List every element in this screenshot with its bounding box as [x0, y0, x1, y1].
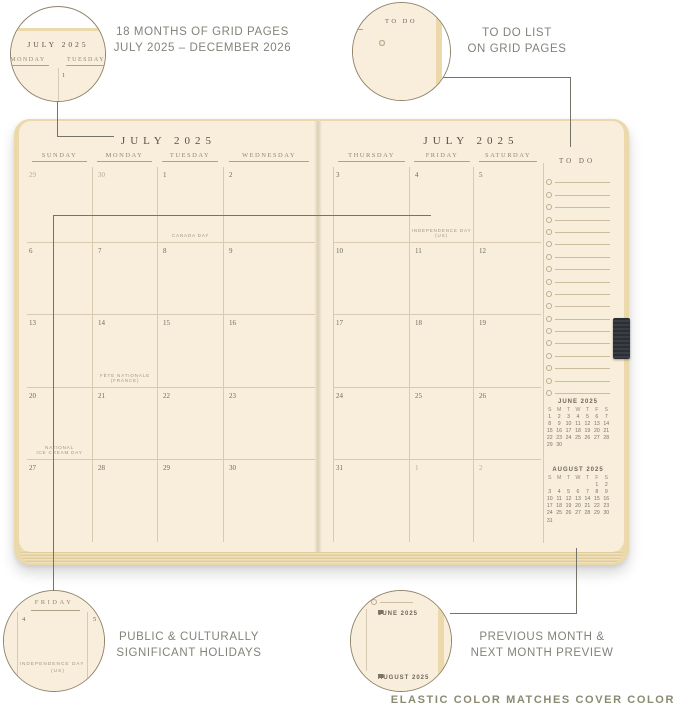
- mini-calendar-title: AUGUST 2025: [545, 467, 611, 473]
- mini-date: 30: [554, 443, 563, 449]
- todo-line: [555, 294, 610, 295]
- mini-date: 29: [545, 443, 554, 449]
- todo-line: [555, 381, 610, 382]
- mini-date: 10: [545, 497, 554, 503]
- calendar-cell: 2: [473, 459, 541, 542]
- mini-day-letter: M: [554, 476, 563, 482]
- todo-item: [546, 295, 610, 307]
- callout-line: TO DO LIST: [482, 27, 552, 39]
- checkbox-circle-icon: [546, 316, 552, 322]
- zoom-circle-holiday: FRIDAY 4 5 INDEPENDENCE DAY (US): [3, 590, 105, 692]
- date-number: 13: [29, 319, 36, 327]
- callout-line: NEXT MONTH PREVIEW: [471, 647, 614, 659]
- mini-date: 1: [592, 483, 601, 489]
- mini-date: 21: [602, 429, 611, 435]
- callout-month-preview: PREVIOUS MONTH & NEXT MONTH PREVIEW: [462, 629, 622, 661]
- mini-date: 12: [564, 497, 573, 503]
- zoomed-day-underline: [31, 610, 80, 611]
- mini-date: 28: [583, 511, 592, 517]
- todo-item: [546, 245, 610, 257]
- mini-date: 19: [583, 429, 592, 435]
- mini-day-letter: T: [583, 476, 592, 482]
- zoom-circle-todo: TO DO: [352, 2, 451, 101]
- mini-date: 3: [545, 490, 554, 496]
- date-number: 27: [29, 464, 36, 472]
- mini-date: 2: [602, 483, 611, 489]
- zoomed-page-edge: [438, 591, 444, 691]
- mini-date: [564, 443, 573, 449]
- zoomed-date-number: 4: [22, 616, 25, 623]
- mini-date: 17: [545, 504, 554, 510]
- mini-date: 7: [583, 490, 592, 496]
- mini-date: 2: [554, 415, 563, 421]
- zoomed-date-number: 5: [93, 616, 96, 623]
- mini-date: 6: [573, 490, 582, 496]
- checkbox-circle-icon: [546, 279, 552, 285]
- todo-item: [546, 357, 610, 369]
- zoomed-month-title: JULY 2025: [11, 40, 105, 49]
- day-header-label: WEDNESDAY: [229, 152, 308, 162]
- leader-line-preview: [450, 548, 577, 614]
- mini-calendar-grid: SMTWTFS123456789101112131415161718192021…: [545, 476, 611, 525]
- mini-date: 15: [592, 497, 601, 503]
- mini-day-letter: T: [564, 408, 573, 414]
- zoomed-day-tuesday: TUESDAY: [66, 57, 106, 66]
- mini-date: [554, 483, 563, 489]
- mini-day-letter: T: [583, 408, 592, 414]
- checkbox-circle-icon: [371, 599, 377, 605]
- zoom-circle-grid-pages: JULY 2025 MONDAY TUESDAY 1: [10, 6, 106, 102]
- callout-line: PREVIOUS MONTH &: [479, 631, 604, 643]
- mini-date: 23: [554, 436, 563, 442]
- todo-line: [555, 319, 610, 320]
- todo-item: [546, 171, 610, 183]
- todo-item: [546, 369, 610, 381]
- mini-date: 16: [602, 497, 611, 503]
- checkbox-circle-icon: [546, 390, 552, 396]
- mini-date: [545, 483, 554, 489]
- mini-date: 9: [554, 422, 563, 428]
- mini-date: 4: [554, 490, 563, 496]
- day-header-label: TUESDAY: [162, 152, 219, 162]
- day-header-label: SATURDAY: [479, 152, 537, 162]
- mini-date: [583, 483, 592, 489]
- checkbox-circle-icon: [546, 217, 552, 223]
- day-header-row-right: THURSDAYFRIDAYSATURDAY: [333, 152, 542, 162]
- todo-item: [546, 344, 610, 356]
- todo-item: [546, 208, 610, 220]
- mini-date: 22: [592, 504, 601, 510]
- mini-date: 14: [602, 422, 611, 428]
- callout-line: JULY 2025 – DECEMBER 2026: [114, 42, 292, 54]
- calendar-cell: 19: [473, 314, 541, 387]
- mini-date: 22: [545, 436, 554, 442]
- mini-calendar-title: JUNE 2025: [545, 399, 611, 405]
- todo-line: [555, 343, 610, 344]
- todo-line: [555, 182, 610, 183]
- calendar-cell: 5: [473, 167, 541, 242]
- todo-item: [546, 307, 610, 319]
- mini-date: [583, 443, 592, 449]
- checkbox-circle-icon: [546, 353, 552, 359]
- mini-calendar-grid: SMTWTFS123456789101112131415161718192021…: [545, 408, 611, 450]
- day-header-cell: SUNDAY: [27, 152, 92, 162]
- mini-date: 11: [573, 422, 582, 428]
- mini-date: 25: [573, 436, 582, 442]
- todo-line: [555, 257, 610, 258]
- callout-months-range: 18 MONTHS OF GRID PAGES JULY 2025 – DECE…: [110, 24, 295, 56]
- zoomed-day-friday: FRIDAY: [4, 599, 104, 606]
- todo-item: [546, 283, 610, 295]
- mini-date: 6: [592, 415, 601, 421]
- product-infographic: 18 MONTHS OF GRID PAGES JULY 2025 – DECE…: [0, 0, 679, 710]
- day-header-cell: SATURDAY: [474, 152, 542, 162]
- mini-date: 12: [583, 422, 592, 428]
- zoomed-holiday-label: INDEPENDENCE DAY: [17, 662, 87, 667]
- todo-line: [555, 232, 610, 233]
- calendar-cell: 12: [473, 242, 541, 314]
- mini-day-letter: W: [573, 408, 582, 414]
- checkbox-circle-icon: [546, 291, 552, 297]
- date-number: 1: [163, 171, 167, 179]
- callout-todo-list: TO DO LIST ON GRID PAGES: [452, 25, 582, 57]
- zoomed-grid-line: [58, 68, 59, 101]
- mini-calendar-august: AUGUST 2025SMTWTFS1234567891011121314151…: [545, 467, 611, 524]
- mini-date: 27: [573, 511, 582, 517]
- mini-date: 13: [573, 497, 582, 503]
- mini-date: 30: [602, 511, 611, 517]
- mini-date: [573, 483, 582, 489]
- mini-date: 28: [602, 436, 611, 442]
- mini-date: 14: [583, 497, 592, 503]
- todo-line: [555, 269, 610, 270]
- day-header-row-left: SUNDAYMONDAYTUESDAYWEDNESDAY: [27, 152, 315, 162]
- day-header-label: SUNDAY: [32, 152, 88, 162]
- date-number: 3: [336, 171, 340, 179]
- mini-date: 16: [554, 429, 563, 435]
- mini-date: 1: [545, 415, 554, 421]
- todo-item: [546, 270, 610, 282]
- zoomed-todo-item: [371, 595, 413, 603]
- mini-date: 20: [573, 504, 582, 510]
- mini-calendar-june: JUNE 2025SMTWTFS123456789101112131415161…: [545, 399, 611, 449]
- todo-item: [546, 221, 610, 233]
- todo-line: [555, 282, 610, 283]
- mini-date: 7: [602, 415, 611, 421]
- mini-date: 27: [592, 436, 601, 442]
- day-header-label: MONDAY: [97, 152, 153, 162]
- day-header-label: THURSDAY: [338, 152, 404, 162]
- todo-line: [555, 331, 610, 332]
- leader-line-grid-pages: [57, 100, 114, 137]
- mini-date: [554, 519, 563, 525]
- date-number: 6: [29, 247, 33, 255]
- mini-day-letter: S: [545, 408, 554, 414]
- callout-line: SIGNIFICANT HOLIDAYS: [116, 647, 261, 659]
- zoomed-holiday-label: (US): [17, 669, 99, 674]
- mini-date: 5: [583, 415, 592, 421]
- callout-line: PUBLIC & CULTURALLY: [119, 631, 259, 643]
- zoomed-date-number: 1: [62, 72, 65, 79]
- zoom-circle-month-preview: JUNE 2025SMTWTFS123456789101112131415161…: [350, 590, 452, 692]
- date-number: 2: [479, 464, 483, 472]
- todo-line: [555, 393, 610, 394]
- leader-line-todo: [442, 77, 571, 147]
- calendar-cell: 26: [473, 387, 541, 459]
- mini-date: 20: [592, 429, 601, 435]
- checkbox-circle-icon: [546, 192, 552, 198]
- todo-line: [555, 220, 610, 221]
- mini-date: 3: [564, 415, 573, 421]
- mini-date: 19: [564, 504, 573, 510]
- zoomed-underline-fragment: [353, 29, 363, 30]
- mini-date: 18: [554, 504, 563, 510]
- day-header-cell: FRIDAY: [410, 152, 474, 162]
- mini-date: 25: [554, 511, 563, 517]
- mini-date: 13: [592, 422, 601, 428]
- mini-day-letter: S: [602, 408, 611, 414]
- mini-date: 15: [545, 429, 554, 435]
- mini-date: 11: [554, 497, 563, 503]
- mini-date: 26: [564, 511, 573, 517]
- mini-day-letter: S: [602, 476, 611, 482]
- mini-date: [602, 443, 611, 449]
- mini-day-letter: F: [592, 476, 601, 482]
- mini-date: 21: [583, 504, 592, 510]
- mini-date: 8: [545, 422, 554, 428]
- todo-header: TO DO: [545, 157, 609, 165]
- date-number: 2: [229, 171, 233, 179]
- mini-date: 23: [602, 504, 611, 510]
- todo-line: [555, 368, 610, 369]
- callout-holidays: PUBLIC & CULTURALLY SIGNIFICANT HOLIDAYS: [110, 629, 268, 661]
- mini-date: 30: [378, 611, 384, 617]
- checkbox-circle-icon: [546, 229, 552, 235]
- day-header-cell: WEDNESDAY: [223, 152, 315, 162]
- todo-item: [546, 233, 610, 245]
- date-number: 5: [479, 171, 483, 179]
- checkbox-circle-icon: [546, 254, 552, 260]
- todo-item: [546, 382, 610, 394]
- elastic-pen-loop: [613, 318, 630, 359]
- todo-line: [555, 244, 610, 245]
- todo-item: [546, 196, 610, 208]
- mini-date: [573, 443, 582, 449]
- mini-day-letter: F: [592, 408, 601, 414]
- mini-date: 10: [564, 422, 573, 428]
- day-header-cell: TUESDAY: [157, 152, 223, 162]
- mini-date: 31: [545, 519, 554, 525]
- todo-item: [546, 183, 610, 195]
- checkbox-circle-icon: [546, 378, 552, 384]
- todo-line: [555, 306, 610, 307]
- date-number: 26: [479, 392, 486, 400]
- mini-day-letter: T: [564, 476, 573, 482]
- todo-line: [555, 207, 610, 208]
- callout-line: 18 MONTHS OF GRID PAGES: [116, 26, 289, 38]
- callout-line: ON GRID PAGES: [468, 43, 567, 55]
- mini-date: 24: [545, 511, 554, 517]
- zoomed-column-divider: [366, 609, 367, 671]
- todo-column-divider: [543, 163, 544, 543]
- todo-line: [555, 356, 610, 357]
- day-header-label: FRIDAY: [414, 152, 469, 162]
- mini-date: 17: [564, 429, 573, 435]
- mini-date: 8: [592, 490, 601, 496]
- day-header-cell: MONDAY: [92, 152, 157, 162]
- zoomed-page: [4, 591, 104, 691]
- date-number: 29: [29, 171, 36, 179]
- todo-item: [546, 332, 610, 344]
- mini-date: [583, 519, 592, 525]
- mini-date: [592, 519, 601, 525]
- mini-date: 24: [564, 436, 573, 442]
- mini-date: [602, 519, 611, 525]
- date-number: 30: [98, 171, 105, 179]
- mini-date: 31: [378, 675, 384, 681]
- mini-date: [573, 519, 582, 525]
- mini-calendar-title: AUGUST 2025: [378, 675, 429, 681]
- todo-item: [546, 320, 610, 332]
- checkbox-circle-icon: [379, 40, 385, 46]
- mini-day-letter: M: [554, 408, 563, 414]
- day-header-cell: THURSDAY: [333, 152, 410, 162]
- mini-day-letter: W: [573, 476, 582, 482]
- todo-item: [546, 258, 610, 270]
- mini-date: [564, 483, 573, 489]
- mini-date: 4: [573, 415, 582, 421]
- leader-line-holidays: [53, 215, 431, 592]
- mini-date: [592, 443, 601, 449]
- mini-date: 9: [602, 490, 611, 496]
- zoomed-day-monday: MONDAY: [10, 57, 49, 66]
- mini-date: 18: [573, 429, 582, 435]
- mini-date: [564, 519, 573, 525]
- todo-list: [546, 171, 610, 394]
- date-number: 4: [415, 171, 419, 179]
- zoomed-todo-header: TO DO: [353, 18, 449, 25]
- todo-line: [380, 602, 413, 603]
- mini-date: 26: [583, 436, 592, 442]
- mini-date: 29: [592, 511, 601, 517]
- todo-line: [555, 195, 610, 196]
- date-number: 12: [479, 247, 486, 255]
- elastic-color-note: ELASTIC COLOR MATCHES COVER COLOR: [391, 694, 675, 706]
- mini-day-letter: S: [545, 476, 554, 482]
- mini-calendar-title: JUNE 2025: [378, 611, 418, 617]
- date-number: 19: [479, 319, 486, 327]
- date-number: 20: [29, 392, 36, 400]
- mini-date: 5: [564, 490, 573, 496]
